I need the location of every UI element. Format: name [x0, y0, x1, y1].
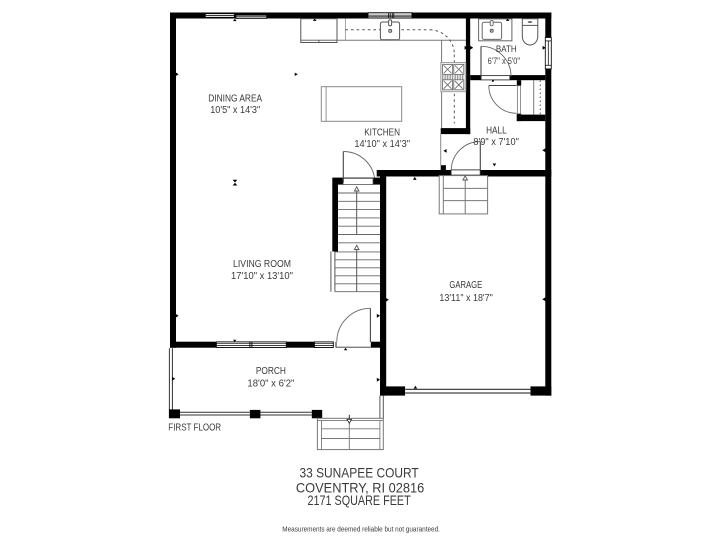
svg-text:2171 SQUARE FEET: 2171 SQUARE FEET [308, 492, 412, 508]
svg-text:DINING AREA: DINING AREA [208, 93, 262, 104]
svg-text:KITCHEN: KITCHEN [364, 128, 400, 139]
svg-text:BATH: BATH [496, 44, 517, 54]
svg-text:18'0" x 6'2": 18'0" x 6'2" [247, 379, 294, 390]
svg-text:PORCH: PORCH [256, 366, 286, 377]
svg-text:Measurements are deemed reliab: Measurements are deemed reliable but not… [282, 525, 440, 534]
svg-text:6'7" x 5'0": 6'7" x 5'0" [488, 56, 520, 66]
svg-text:10'5" x 14'3": 10'5" x 14'3" [210, 105, 260, 116]
svg-text:8'9" x 7'10": 8'9" x 7'10" [473, 137, 519, 148]
svg-text:LIVING ROOM: LIVING ROOM [233, 259, 291, 270]
svg-text:GARAGE: GARAGE [449, 280, 482, 291]
svg-text:HALL: HALL [486, 125, 507, 136]
svg-text:13'11" x 18'7": 13'11" x 18'7" [439, 293, 493, 304]
svg-text:33 SUNAPEE COURT: 33 SUNAPEE COURT [300, 465, 420, 481]
svg-text:14'10" x 14'3": 14'10" x 14'3" [354, 139, 410, 150]
svg-text:17'10" x 13'10": 17'10" x 13'10" [231, 271, 293, 282]
svg-text:FIRST FLOOR: FIRST FLOOR [168, 423, 221, 434]
